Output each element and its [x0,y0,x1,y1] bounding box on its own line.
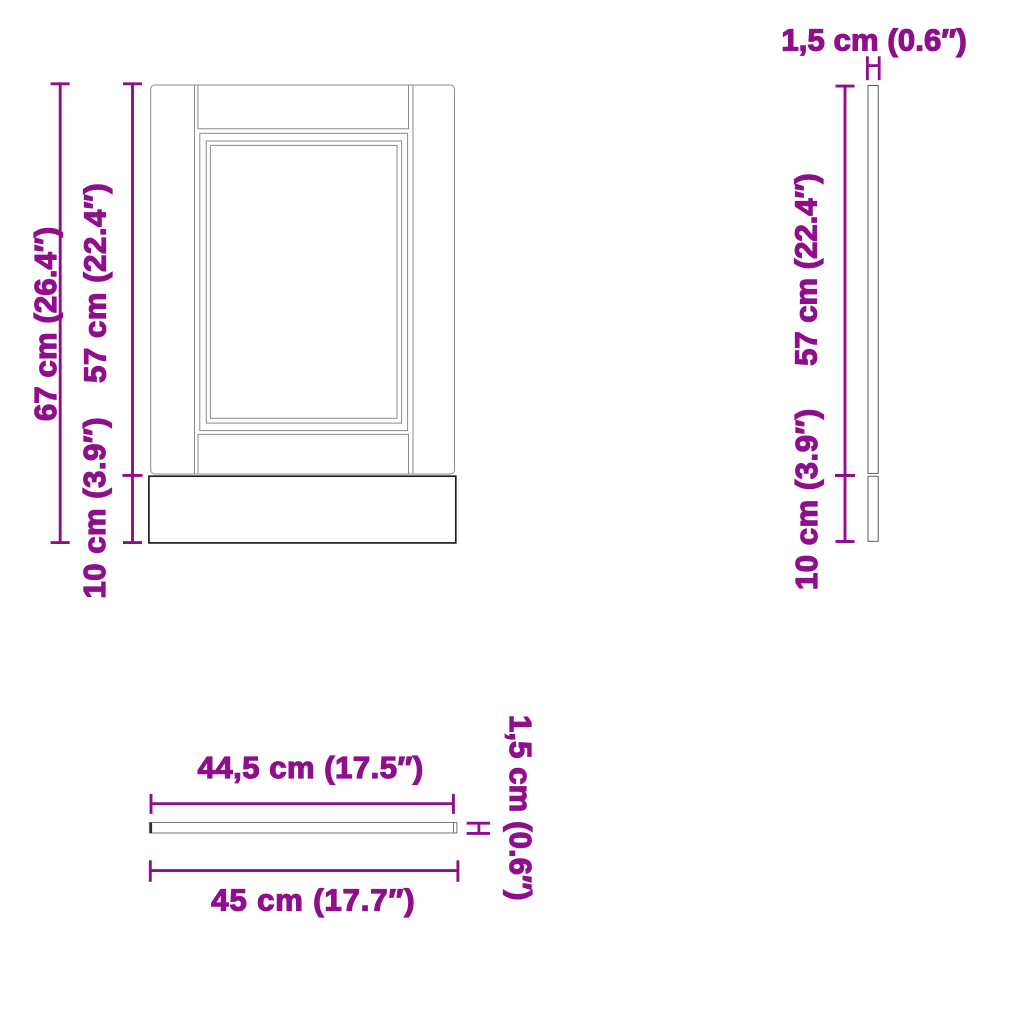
svg-text:45 cm (17.7″): 45 cm (17.7″) [211,883,415,918]
svg-text:57 cm (22.4″): 57 cm (22.4″) [77,183,112,383]
svg-text:10 cm (3.9″): 10 cm (3.9″) [77,417,112,599]
svg-text:67 cm (26.4″): 67 cm (26.4″) [28,227,63,421]
svg-text:10 cm (3.9″): 10 cm (3.9″) [789,408,824,590]
svg-text:1,5 cm (0.6″): 1,5 cm (0.6″) [503,715,538,901]
svg-text:57 cm (22.4″): 57 cm (22.4″) [789,173,824,366]
svg-text:44,5 cm (17.5″): 44,5 cm (17.5″) [198,750,424,785]
svg-text:1,5 cm (0.6″): 1,5 cm (0.6″) [781,22,967,57]
